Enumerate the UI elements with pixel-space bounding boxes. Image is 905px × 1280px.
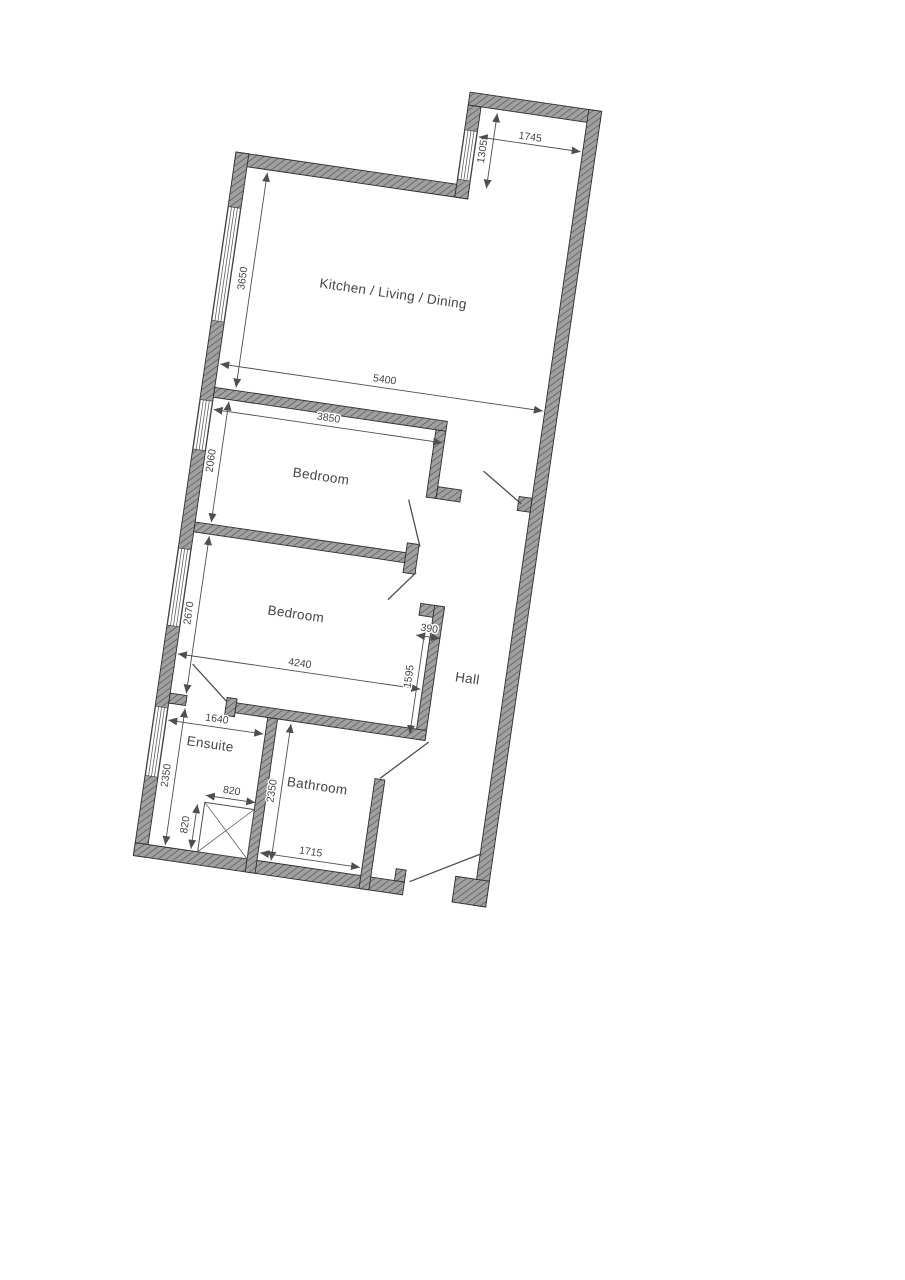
dimension-lines [150, 79, 584, 890]
dim-ensuite-depth: 2350 [159, 763, 174, 788]
dim-hall-nib: 390 [420, 622, 439, 636]
wall-bedroom2-bottom-left-stub [169, 693, 187, 705]
door-hall-kitchen [480, 471, 525, 504]
dim-bathroom-width: 1715 [298, 844, 323, 859]
wall-right-foot [452, 876, 489, 907]
room-label-kitchen: Kitchen / Living / Dining [319, 276, 468, 312]
room-labels: Kitchen / Living / Dining Bedroom Bedroo… [182, 266, 534, 814]
dim-bedroom2-depth: 2670 [181, 600, 196, 625]
room-label-ensuite: Ensuite [186, 733, 235, 755]
wall-bedroom1-bedroom2 [194, 522, 410, 563]
dim-shower-width: 820 [222, 784, 241, 798]
dim-kitchen-width: 5400 [372, 372, 397, 387]
dim-bedroom2-right: 1595 [401, 664, 416, 689]
plan-group: 1745 1305 3650 5400 3850 2060 2670 4240 … [133, 60, 601, 907]
wall-divider-cap [403, 543, 419, 574]
page: 1745 1305 3650 5400 3850 2060 2670 4240 … [0, 0, 905, 1280]
wall-right [473, 109, 602, 906]
dim-bedroom2-width: 4240 [287, 656, 312, 671]
wall-bedroom2-bottom [235, 703, 426, 741]
room-label-bedroom1: Bedroom [292, 465, 350, 488]
wall-bedroom1-return-stub [436, 487, 461, 502]
door-ensuite [188, 664, 231, 701]
room-label-hall: Hall [454, 669, 480, 687]
wall-bathroom-right [359, 779, 385, 890]
dim-bathroom-depth: 2350 [265, 778, 280, 803]
wall-bottom-end-cap [394, 869, 406, 882]
dimline-shower-depth [191, 804, 197, 849]
wall-hall-door-stub [517, 496, 532, 512]
wall-kitchen-bedroom1 [213, 387, 447, 431]
dim-bedroom1-depth: 2060 [204, 448, 219, 473]
dim-notch-depth: 1305 [475, 139, 490, 164]
window-kitchen [212, 206, 240, 322]
shower-unit [198, 802, 255, 859]
room-label-bathroom: Bathroom [286, 774, 348, 798]
dim-shower-depth: 820 [178, 815, 192, 834]
dim-bedroom1-width: 3850 [316, 411, 341, 426]
door-bathroom [380, 736, 429, 785]
floor-plan: 1745 1305 3650 5400 3850 2060 2670 4240 … [0, 0, 905, 1280]
dim-kitchen-depth: 3650 [235, 266, 250, 291]
door-bedroom1 [402, 500, 426, 547]
walls [133, 60, 601, 907]
wall-notch-top [468, 92, 601, 124]
room-label-bedroom2: Bedroom [267, 602, 325, 625]
wall-top-main [234, 152, 469, 199]
dim-ensuite-width: 1640 [204, 712, 229, 727]
